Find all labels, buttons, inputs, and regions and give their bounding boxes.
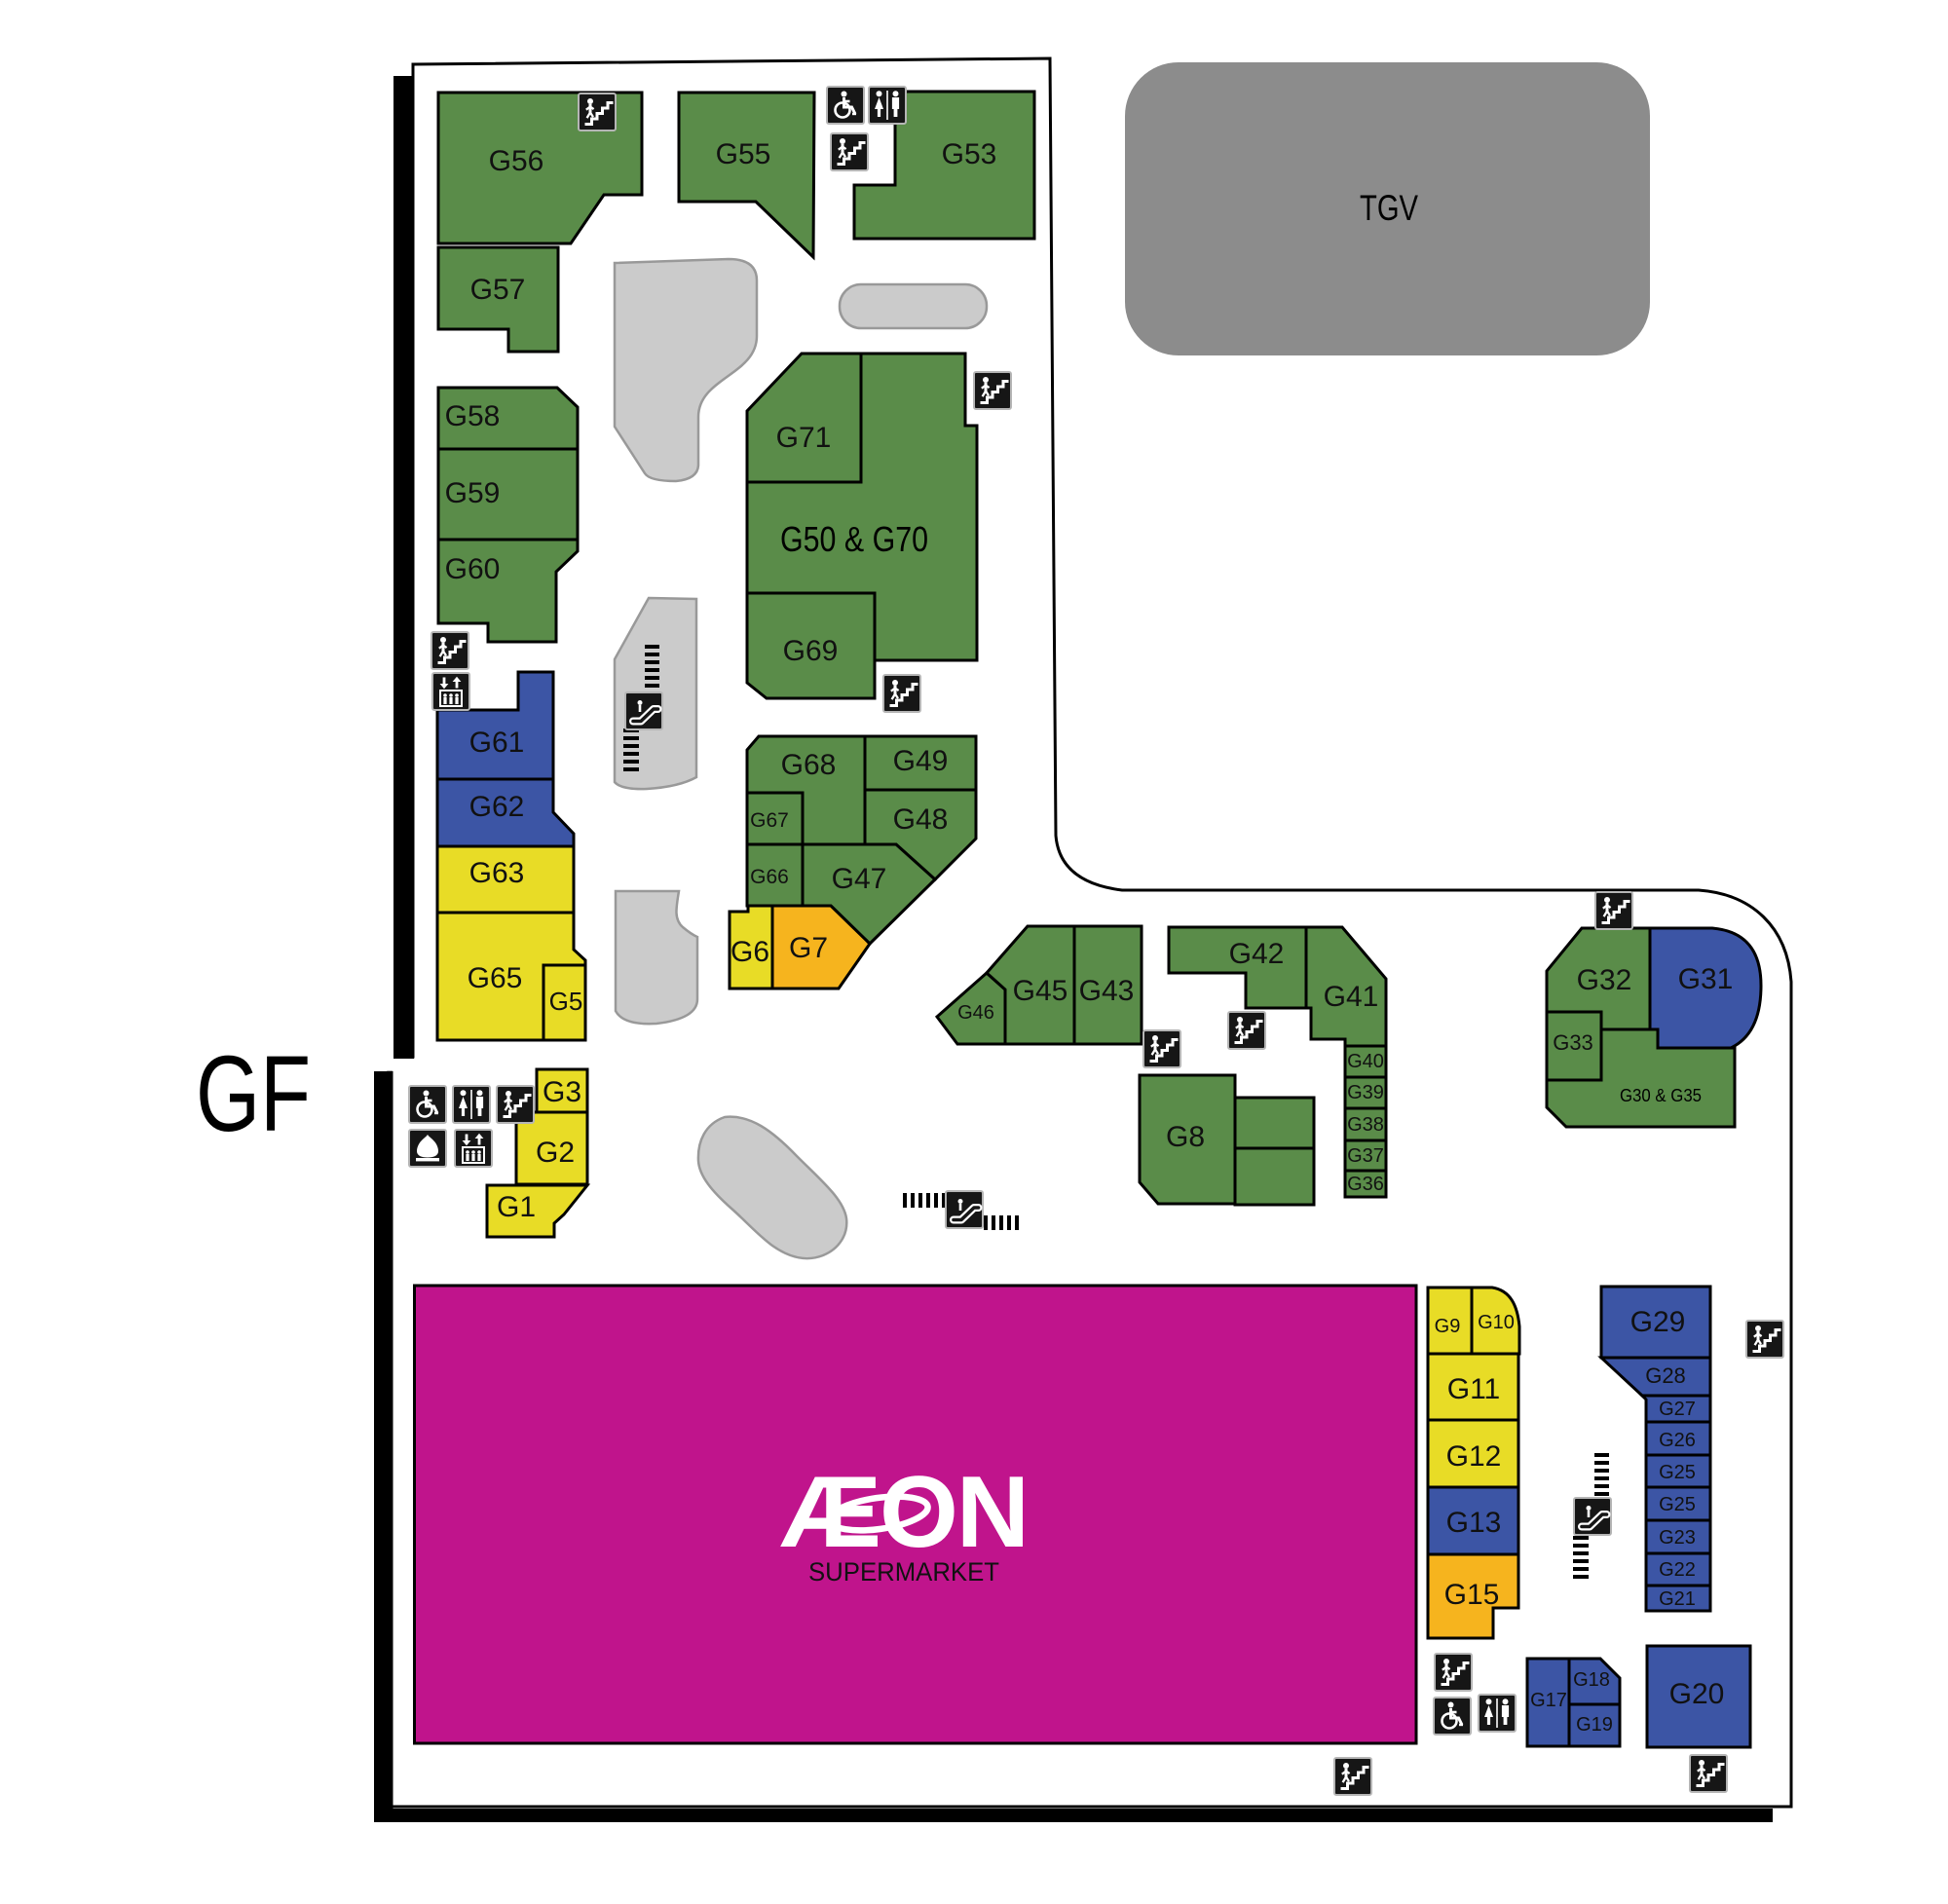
svg-text:G8: G8: [1166, 1121, 1205, 1153]
svg-text:G57: G57: [470, 274, 526, 306]
svg-text:G69: G69: [783, 635, 839, 667]
svg-text:GF: GF: [196, 1034, 311, 1154]
svg-text:G7: G7: [789, 932, 828, 964]
svg-text:ÆON: ÆON: [780, 1456, 1028, 1569]
svg-text:G12: G12: [1446, 1440, 1502, 1473]
svg-text:G67: G67: [750, 809, 789, 832]
svg-text:G3: G3: [543, 1076, 581, 1108]
svg-text:G48: G48: [893, 803, 949, 836]
svg-text:G17: G17: [1530, 1690, 1567, 1711]
svg-text:G55: G55: [716, 138, 771, 170]
svg-text:G53: G53: [942, 138, 997, 170]
svg-text:G5: G5: [549, 987, 583, 1016]
svg-text:G25: G25: [1659, 1462, 1696, 1483]
svg-text:G58: G58: [445, 400, 501, 432]
svg-text:G45: G45: [1013, 975, 1068, 1007]
svg-text:G63: G63: [469, 857, 525, 889]
svg-text:G33: G33: [1553, 1030, 1593, 1055]
svg-text:G49: G49: [893, 745, 949, 777]
svg-text:G11: G11: [1447, 1373, 1500, 1405]
svg-text:G28: G28: [1645, 1363, 1686, 1388]
svg-text:G50 & G70: G50 & G70: [780, 519, 928, 559]
svg-text:G30 & G35: G30 & G35: [1620, 1086, 1702, 1105]
svg-text:G71: G71: [776, 422, 832, 454]
svg-text:G66: G66: [750, 866, 789, 888]
svg-text:G18: G18: [1573, 1669, 1610, 1691]
svg-text:G25: G25: [1659, 1494, 1696, 1515]
svg-text:G6: G6: [730, 936, 769, 968]
svg-text:G19: G19: [1576, 1714, 1613, 1736]
svg-text:G68: G68: [781, 749, 837, 781]
svg-text:G43: G43: [1079, 975, 1135, 1007]
svg-text:G60: G60: [445, 553, 501, 585]
svg-text:G23: G23: [1659, 1527, 1696, 1549]
svg-text:G56: G56: [489, 145, 544, 177]
svg-text:G38: G38: [1347, 1114, 1384, 1136]
svg-text:G59: G59: [445, 477, 501, 509]
svg-text:G37: G37: [1347, 1145, 1384, 1167]
svg-text:G42: G42: [1229, 938, 1285, 970]
svg-text:G31: G31: [1678, 963, 1734, 995]
svg-text:G41: G41: [1324, 981, 1379, 1013]
svg-text:G20: G20: [1669, 1678, 1725, 1710]
svg-text:G36: G36: [1347, 1174, 1384, 1195]
svg-text:G32: G32: [1577, 964, 1632, 996]
svg-text:G62: G62: [469, 791, 525, 823]
svg-text:G39: G39: [1347, 1082, 1384, 1103]
svg-text:G10: G10: [1478, 1312, 1515, 1333]
svg-text:G9: G9: [1435, 1316, 1461, 1337]
svg-text:G27: G27: [1659, 1399, 1696, 1420]
svg-text:G47: G47: [832, 863, 887, 895]
svg-text:G1: G1: [497, 1191, 536, 1223]
svg-text:G21: G21: [1659, 1588, 1696, 1610]
svg-text:G15: G15: [1444, 1579, 1500, 1611]
svg-text:SUPERMARKET: SUPERMARKET: [808, 1557, 999, 1587]
svg-text:G29: G29: [1630, 1306, 1686, 1338]
svg-text:G46: G46: [957, 1002, 994, 1024]
svg-text:G22: G22: [1659, 1559, 1696, 1581]
svg-text:TGV: TGV: [1360, 188, 1418, 228]
svg-text:G13: G13: [1446, 1507, 1502, 1539]
svg-text:G40: G40: [1347, 1051, 1384, 1072]
svg-text:G61: G61: [469, 727, 525, 759]
svg-text:G65: G65: [468, 962, 523, 994]
svg-text:G26: G26: [1659, 1430, 1696, 1451]
svg-text:G2: G2: [536, 1137, 575, 1169]
